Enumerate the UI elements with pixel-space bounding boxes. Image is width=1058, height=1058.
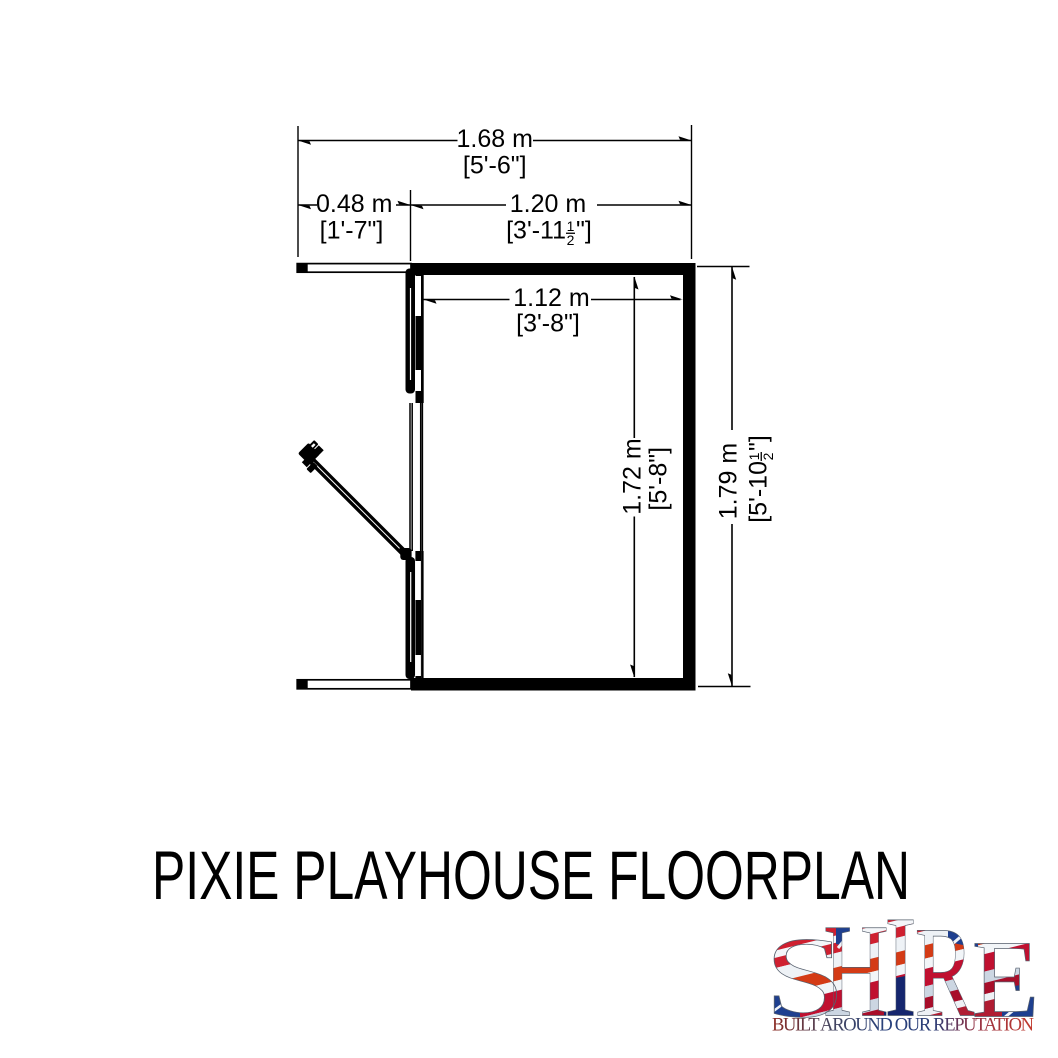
svg-text:1.72 m: 1.72 m	[619, 438, 647, 514]
svg-text:2: 2	[567, 232, 575, 248]
svg-text:"]: "]	[745, 435, 773, 451]
svg-text:[5'-6"]: [5'-6"]	[463, 152, 527, 180]
svg-text:0.48 m: 0.48 m	[316, 190, 392, 218]
svg-text:"]: "]	[576, 217, 592, 245]
svg-text:[5'-10: [5'-10	[745, 461, 773, 523]
svg-text:2: 2	[760, 452, 776, 460]
svg-text:1.20 m: 1.20 m	[510, 190, 586, 218]
svg-text:[3'-8"]: [3'-8"]	[516, 310, 580, 338]
svg-text:1.68 m: 1.68 m	[457, 125, 533, 153]
svg-text:PIXIE PLAYHOUSE FLOORPLAN: PIXIE PLAYHOUSE FLOORPLAN	[152, 837, 910, 914]
svg-text:[5'-8"]: [5'-8"]	[645, 447, 673, 511]
svg-text:1.12 m: 1.12 m	[513, 284, 589, 312]
svg-text:[3'-11: [3'-11	[506, 217, 566, 245]
svg-text:1.79 m: 1.79 m	[715, 443, 743, 519]
svg-text:BUILT AROUND OUR REPUTATION: BUILT AROUND OUR REPUTATION	[772, 1016, 1034, 1036]
svg-text:[1'-7"]: [1'-7"]	[320, 217, 384, 245]
